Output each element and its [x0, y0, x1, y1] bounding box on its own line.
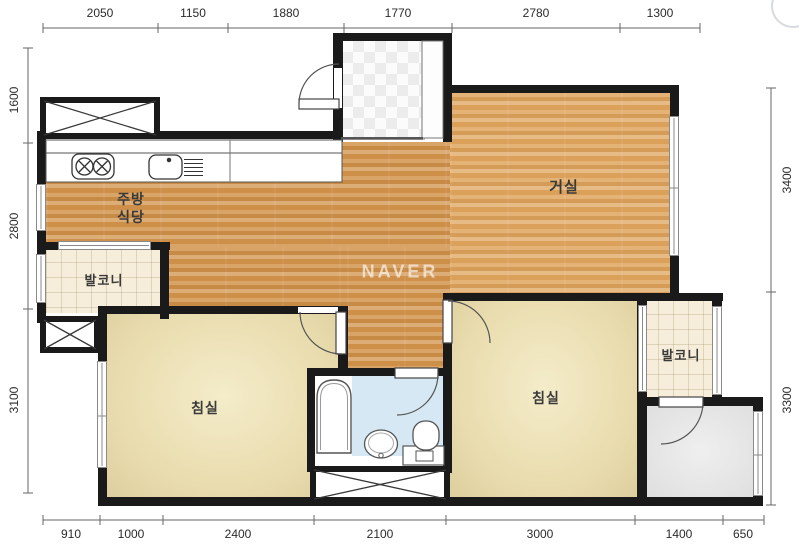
utility-door-swing: [661, 402, 703, 444]
naver-watermark: NAVER: [362, 262, 439, 283]
dim-left-0: 1600: [7, 87, 21, 114]
stove-icon: [72, 154, 114, 179]
living-room-label: 거실: [549, 179, 579, 197]
shoe-cabinet: [422, 41, 443, 138]
bedroom-right-door: [443, 300, 490, 343]
bedroom-right-door-swing: [448, 301, 490, 343]
kitchen-label-line2: 식당: [117, 208, 145, 226]
dim-left-2: 3100: [7, 387, 21, 414]
kitchen-dining-label: 주방 식당: [117, 190, 145, 226]
balcony-right-label: 발코니: [662, 347, 701, 365]
bathroom-door: [395, 368, 438, 415]
dim-right-0: 3400: [780, 167, 794, 194]
bedroom-left-door: [300, 312, 346, 354]
bedroom-right-label: 침실: [532, 389, 560, 407]
washbasin-icon: [365, 430, 398, 458]
dim-bottom-0: 910: [61, 527, 81, 541]
kitchen-label-line1: 주방: [117, 190, 145, 208]
bathroom-fixtures: [317, 380, 444, 465]
bedroom-left-label: 침실: [191, 399, 219, 417]
dim-bottom-5: 1400: [666, 527, 693, 541]
utility-door: [659, 397, 703, 444]
sink-icon: [149, 155, 182, 179]
dim-left-1: 2800: [7, 213, 21, 240]
floorplan-page: 2050 1150 1880 1770 2780 1300 910 1000 2…: [0, 0, 799, 553]
dim-bottom-6: 650: [733, 527, 753, 541]
dim-top-5: 1300: [647, 6, 674, 20]
balcony-left-label: 발코니: [85, 272, 124, 290]
toilet-icon: [403, 421, 444, 465]
dim-top-4: 2780: [523, 6, 550, 20]
dim-top-1: 1150: [180, 6, 206, 20]
bathroom-door-swing: [397, 374, 438, 415]
dim-top-0: 2050: [87, 6, 114, 20]
dim-bottom-2: 2400: [225, 527, 252, 541]
dim-top-2: 1880: [273, 6, 300, 20]
kitchen-counter: [46, 140, 342, 182]
dim-top-3: 1770: [385, 6, 412, 20]
dim-right-1: 3300: [780, 387, 794, 414]
dim-bottom-3: 2100: [367, 527, 394, 541]
dim-bottom-1: 1000: [118, 527, 145, 541]
entrance-threshold: [341, 137, 423, 140]
dim-bottom-4: 3000: [527, 527, 554, 541]
